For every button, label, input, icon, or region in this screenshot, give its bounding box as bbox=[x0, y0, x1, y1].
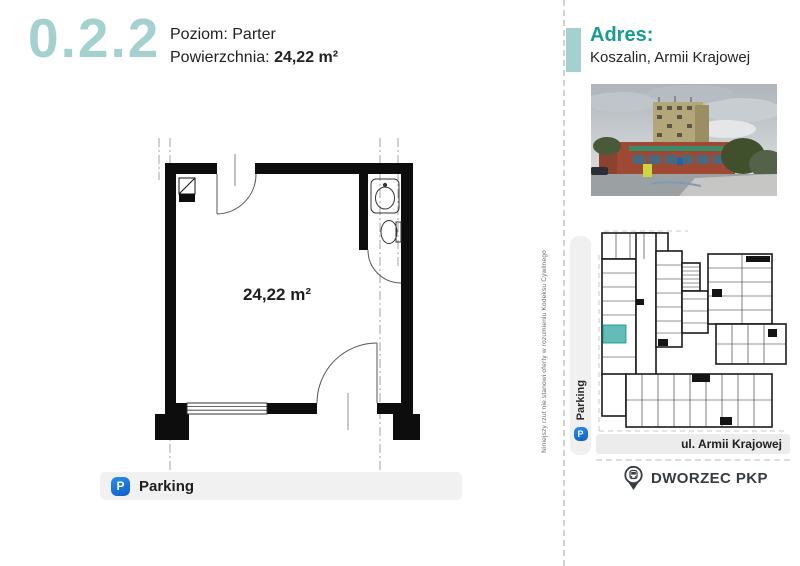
offer-page: 0.2.2 Poziom: Parter Powierzchnia: 24,22… bbox=[0, 0, 800, 566]
road-markings bbox=[596, 459, 790, 461]
station-logo: DWORZEC PKP bbox=[622, 465, 768, 492]
address-value: Koszalin, Armii Krajowej bbox=[590, 49, 750, 66]
station-label: DWORZEC PKP bbox=[651, 470, 768, 487]
area-value: 24,22 m² bbox=[274, 49, 338, 66]
unit-meta: Poziom: Parter Powierzchnia: 24,22 m² bbox=[170, 23, 338, 69]
parking-icon: P bbox=[111, 477, 130, 496]
level-label: Poziom: bbox=[170, 26, 228, 43]
dashed-divider bbox=[563, 0, 565, 566]
address-label: Adres: bbox=[590, 24, 653, 47]
site-plan-drawing bbox=[596, 229, 790, 433]
train-station-pin-icon bbox=[622, 465, 645, 492]
level-line: Poziom: Parter bbox=[170, 23, 338, 46]
siteplan-parking-label: Parking bbox=[575, 380, 587, 420]
siteplan-parking-icon: P bbox=[574, 427, 588, 441]
level-value: Parter bbox=[232, 26, 276, 43]
parking-badge-label: Parking bbox=[139, 478, 194, 495]
area-line: Powierzchnia: 24,22 m² bbox=[170, 46, 338, 69]
bathroom-door-symbol bbox=[368, 250, 401, 283]
entry-door-symbol bbox=[217, 154, 256, 214]
siteplan-parking-strip: Parking P bbox=[570, 236, 591, 455]
area-label: Powierzchnia: bbox=[170, 49, 270, 66]
shaft-symbol bbox=[179, 178, 195, 194]
floor-plan-drawing: 24,22 m² bbox=[155, 138, 420, 470]
parking-badge: P Parking bbox=[100, 472, 462, 500]
street-label: ul. Armii Krajowej bbox=[596, 434, 790, 454]
unit-number: 0.2.2 bbox=[28, 6, 160, 70]
sink-symbol bbox=[371, 179, 399, 213]
address-accent-block bbox=[566, 28, 581, 72]
window-symbol bbox=[187, 403, 267, 414]
legal-disclaimer: Niniejszy rzut nie stanowi oferty w rozu… bbox=[541, 250, 548, 453]
bottom-door-symbol bbox=[317, 343, 377, 430]
building-photo bbox=[591, 84, 777, 196]
building-photo-drawing bbox=[591, 84, 777, 196]
plan-area-label: 24,22 m² bbox=[243, 285, 311, 304]
highlighted-unit bbox=[603, 325, 626, 343]
